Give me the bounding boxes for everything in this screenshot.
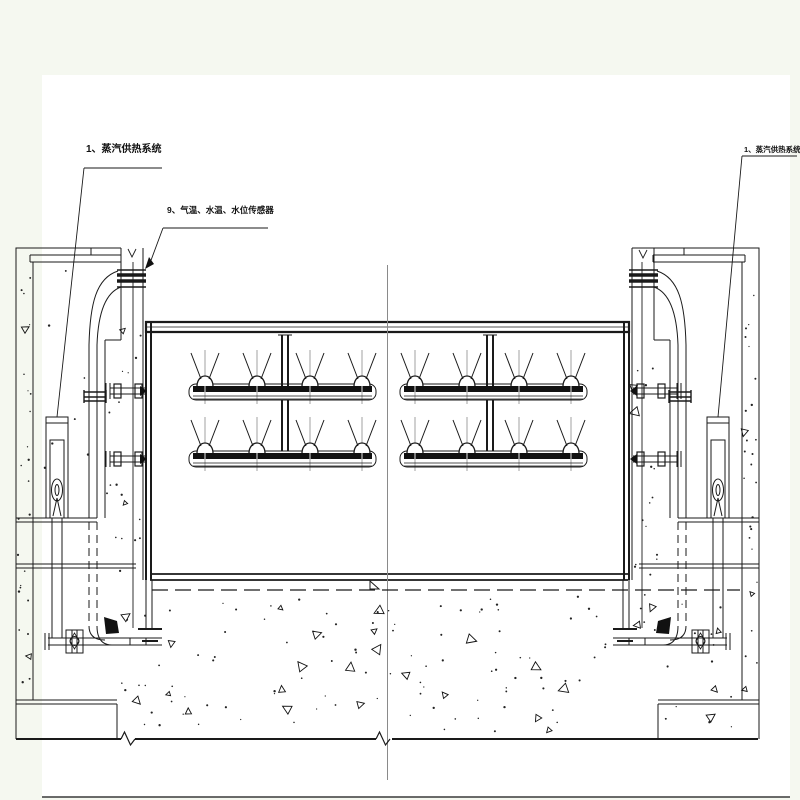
aggregate-dot	[755, 439, 757, 441]
aggregate-dot	[754, 378, 756, 380]
right-riser-flange	[669, 390, 691, 403]
aggregate-dot	[48, 324, 50, 326]
aggregate-dot	[87, 453, 89, 455]
aggregate-dot	[183, 714, 184, 715]
aggregate-dot	[596, 616, 598, 618]
aggregate-dot	[711, 633, 713, 635]
aggregate-dot	[645, 384, 647, 386]
aggregate-dot	[634, 566, 636, 568]
aggregate-dot	[122, 371, 123, 372]
aggregate-dot	[335, 623, 337, 625]
aggregate-dot	[751, 453, 753, 455]
aggregate-dot	[392, 630, 394, 632]
aggregate-dot	[331, 660, 333, 662]
aggregate-dot	[529, 657, 530, 658]
aggregate-dot	[322, 636, 324, 638]
aggregate-dot	[454, 718, 456, 720]
aggregate-dot	[354, 649, 356, 651]
aggregate-dot	[21, 289, 23, 291]
aggregate-dot	[184, 696, 185, 697]
aggregate-dot	[222, 603, 223, 604]
label-left-steam-system: 1、蒸汽供热系统	[86, 142, 162, 155]
aggregate-dot	[286, 642, 288, 644]
aggregate-dot	[18, 629, 20, 631]
aggregate-dot	[18, 518, 20, 520]
aggregate-dot	[749, 526, 751, 528]
aggregate-dot	[750, 528, 752, 530]
aggregate-dot	[372, 622, 374, 624]
aggregate-dot	[642, 519, 644, 521]
aggregate-dot	[744, 450, 746, 452]
aggregate-dot	[20, 585, 21, 586]
aggregate-dot	[51, 442, 53, 444]
aggregate-dot	[23, 373, 25, 375]
aggregate-dot	[745, 655, 747, 657]
aggregate-dot	[144, 724, 145, 725]
aggregate-dot	[139, 519, 141, 521]
manifold-pipe	[193, 386, 372, 392]
aggregate-dot	[745, 410, 747, 412]
aggregate-dot	[274, 693, 275, 694]
aggregate-dot	[301, 677, 303, 679]
aggregate-dot	[637, 370, 639, 372]
aggregate-dot	[118, 401, 120, 403]
aggregate-dot	[656, 554, 658, 556]
aggregate-dot	[477, 700, 478, 701]
aggregate-dot	[495, 652, 496, 653]
aggregate-dot	[652, 368, 654, 370]
aggregate-dot	[577, 596, 579, 598]
aggregate-dot	[751, 404, 753, 406]
aggregate-dot	[649, 502, 651, 504]
aggregate-dot	[20, 465, 22, 467]
aggregate-dot	[17, 554, 19, 556]
aggregate-dot	[212, 659, 214, 661]
aggregate-dot	[570, 617, 572, 619]
aggregate-dot	[654, 629, 656, 631]
aggregate-dot	[410, 715, 411, 716]
aggregate-dot	[650, 466, 652, 468]
aggregate-dot	[171, 685, 173, 687]
aggregate-dot	[24, 570, 26, 572]
aggregate-dot	[748, 324, 749, 325]
aggregate-dot	[694, 632, 696, 634]
aggregate-dot	[494, 730, 496, 732]
aggregate-dot	[433, 707, 435, 709]
aggregate-dot	[388, 610, 389, 611]
aggregate-dot	[420, 693, 422, 695]
aggregate-dot	[552, 709, 554, 711]
manifold-pipe	[404, 386, 583, 392]
aggregate-dot	[520, 657, 522, 659]
aggregate-dot	[335, 704, 337, 706]
aggregate-dot	[605, 643, 607, 645]
aggregate-dot	[124, 689, 126, 691]
aggregate-dot	[214, 656, 216, 658]
aggregate-dot	[197, 654, 199, 656]
aggregate-dot	[65, 270, 67, 272]
aggregate-dot	[440, 634, 442, 636]
aggregate-dot	[514, 677, 516, 679]
aggregate-dot	[158, 724, 160, 726]
aggregate-dot	[128, 372, 129, 373]
aggregate-dot	[711, 660, 713, 662]
aggregate-dot	[206, 704, 208, 706]
aggregate-dot	[365, 672, 367, 674]
aggregate-dot	[420, 682, 422, 684]
aggregate-dot	[505, 690, 507, 692]
engineering-drawing: 1、蒸汽供热系统 9、气温、水温、水位传感器 1、蒸汽供热系统	[0, 0, 800, 800]
aggregate-dot	[316, 708, 317, 709]
aggregate-dot	[390, 673, 391, 674]
aggregate-dot	[713, 644, 715, 646]
aggregate-dot	[121, 538, 123, 540]
aggregate-dot	[479, 611, 480, 612]
aggregate-dot	[119, 570, 121, 572]
aggregate-dot	[171, 701, 173, 703]
aggregate-dot	[498, 609, 500, 611]
aggregate-dot	[28, 459, 30, 461]
aggregate-dot	[108, 412, 110, 414]
aggregate-dot	[499, 630, 501, 632]
aggregate-dot	[264, 618, 265, 619]
aggregate-dot	[730, 696, 732, 698]
aggregate-dot	[84, 377, 86, 379]
aggregate-dot	[135, 357, 137, 359]
aggregate-dot	[756, 582, 757, 583]
aggregate-dot	[588, 608, 590, 610]
aggregate-dot	[635, 564, 637, 566]
aggregate-dot	[140, 335, 142, 337]
aggregate-dot	[27, 446, 28, 447]
aggregate-dot	[20, 587, 22, 589]
aggregate-dot	[564, 680, 566, 682]
aggregate-dot	[423, 686, 424, 687]
aggregate-dot	[444, 729, 446, 731]
aggregate-dot	[44, 467, 46, 469]
label-right-steam-system: 1、蒸汽供热系统	[744, 144, 800, 154]
aggregate-dot	[751, 516, 753, 518]
aggregate-dot	[749, 537, 751, 539]
aggregate-dot	[115, 537, 117, 539]
aggregate-dot	[640, 608, 642, 610]
manifold-pipe	[193, 453, 372, 459]
aggregate-dot	[460, 609, 462, 611]
aggregate-dot	[653, 468, 654, 469]
aggregate-dot	[139, 537, 141, 539]
aggregate-dot	[377, 611, 379, 613]
aggregate-dot	[27, 633, 29, 635]
aggregate-dot	[540, 677, 542, 679]
aggregate-dot	[134, 539, 136, 541]
aggregate-dot	[667, 665, 669, 667]
aggregate-dot	[652, 497, 654, 499]
aggregate-dot	[665, 718, 667, 720]
aggregate-dot	[604, 646, 606, 648]
aggregate-dot	[18, 590, 20, 592]
aggregate-dot	[440, 605, 442, 607]
aggregate-dot	[656, 558, 657, 559]
aggregate-dot	[273, 690, 275, 692]
aggregate-dot	[394, 624, 395, 625]
aggregate-dot	[240, 719, 241, 720]
aggregate-dot	[225, 706, 227, 708]
aggregate-dot	[158, 664, 160, 666]
aggregate-dot	[138, 684, 140, 686]
aggregate-dot	[743, 477, 745, 479]
left-riser-flange	[84, 390, 106, 403]
aggregate-dot	[74, 418, 76, 420]
aggregate-dot	[425, 665, 427, 667]
aggregate-dot	[270, 605, 272, 607]
aggregate-dot	[745, 327, 747, 329]
aggregate-dot	[645, 526, 646, 527]
aggregate-dot	[751, 630, 753, 632]
aggregate-dot	[748, 346, 749, 347]
aggregate-dot	[23, 293, 25, 295]
aggregate-dot	[644, 594, 646, 596]
aggregate-dot	[29, 324, 30, 325]
aggregate-dot	[579, 679, 581, 681]
aggregate-dot	[355, 652, 357, 654]
aggregate-dot	[750, 464, 752, 466]
aggregate-dot	[293, 722, 295, 724]
aggregate-dot	[30, 393, 32, 395]
aggregate-dot	[503, 706, 505, 708]
aggregate-dot	[481, 608, 483, 610]
aggregate-dot	[755, 482, 757, 484]
aggregate-dot	[744, 336, 746, 338]
aggregate-dot	[542, 687, 544, 689]
aggregate-dot	[495, 669, 497, 671]
aggregate-dot	[753, 295, 754, 296]
aggregate-dot	[29, 678, 31, 680]
aggregate-dot	[22, 681, 24, 683]
aggregate-dot	[27, 600, 29, 602]
aggregate-dot	[110, 484, 112, 486]
aggregate-dot	[145, 685, 146, 686]
aggregate-dot	[676, 706, 677, 707]
aggregate-dot	[224, 631, 226, 633]
aggregate-dot	[198, 724, 199, 725]
manifold-pipe	[404, 453, 583, 459]
aggregate-dot	[106, 492, 108, 494]
label-sensors: 9、气温、水温、水位传感器	[167, 205, 274, 215]
aggregate-dot	[121, 494, 123, 496]
aggregate-dot	[491, 670, 493, 672]
aggregate-dot	[496, 603, 498, 605]
aggregate-dot	[115, 484, 117, 486]
aggregate-dot	[27, 390, 28, 391]
aggregate-dot	[731, 726, 732, 727]
aggregate-dot	[29, 277, 31, 279]
aggregate-dot	[29, 411, 30, 412]
aggregate-dot	[235, 608, 237, 610]
aggregate-dot	[756, 662, 758, 664]
aggregate-dot	[326, 613, 328, 615]
aggregate-dot	[442, 659, 444, 661]
aggregate-dot	[28, 480, 30, 482]
aggregate-dot	[377, 698, 378, 699]
aggregate-dot	[490, 598, 492, 600]
aggregate-dot	[169, 609, 171, 611]
aggregate-dot	[144, 615, 146, 617]
aggregate-dot	[746, 440, 748, 442]
aggregate-dot	[121, 682, 123, 684]
aggregate-dot	[681, 604, 682, 605]
aggregate-dot	[151, 712, 153, 714]
aggregate-dot	[719, 606, 721, 608]
aggregate-dot	[478, 718, 479, 719]
aggregate-dot	[29, 513, 31, 515]
aggregate-dot	[643, 621, 645, 623]
aggregate-dot	[298, 598, 300, 600]
aggregate-dot	[594, 656, 596, 658]
aggregate-dot	[649, 574, 651, 576]
aggregate-dot	[325, 695, 326, 696]
aggregate-dot	[411, 655, 412, 656]
aggregate-dot	[751, 548, 752, 549]
aggregate-dot	[506, 687, 507, 688]
aggregate-dot	[556, 722, 558, 724]
